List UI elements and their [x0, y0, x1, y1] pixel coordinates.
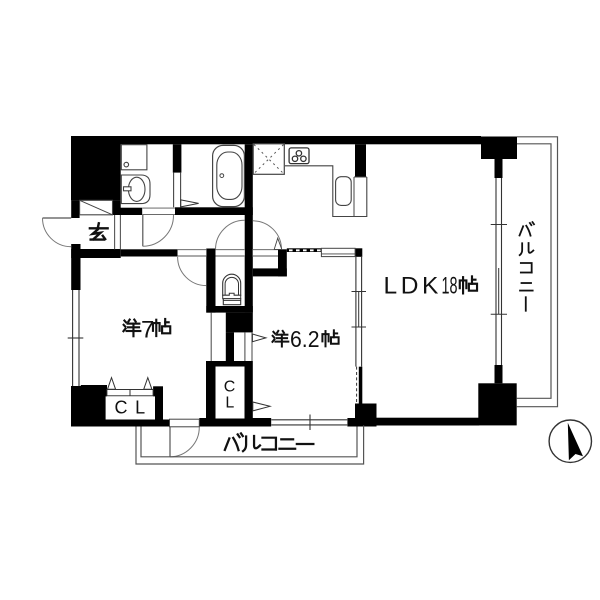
svg-text:CL: CL — [115, 398, 153, 418]
svg-text:LDK: LDK — [384, 272, 442, 299]
svg-text:C: C — [224, 379, 236, 396]
svg-text:6.2: 6.2 — [290, 326, 320, 352]
svg-text:18: 18 — [442, 272, 458, 299]
svg-text:L: L — [225, 394, 234, 411]
